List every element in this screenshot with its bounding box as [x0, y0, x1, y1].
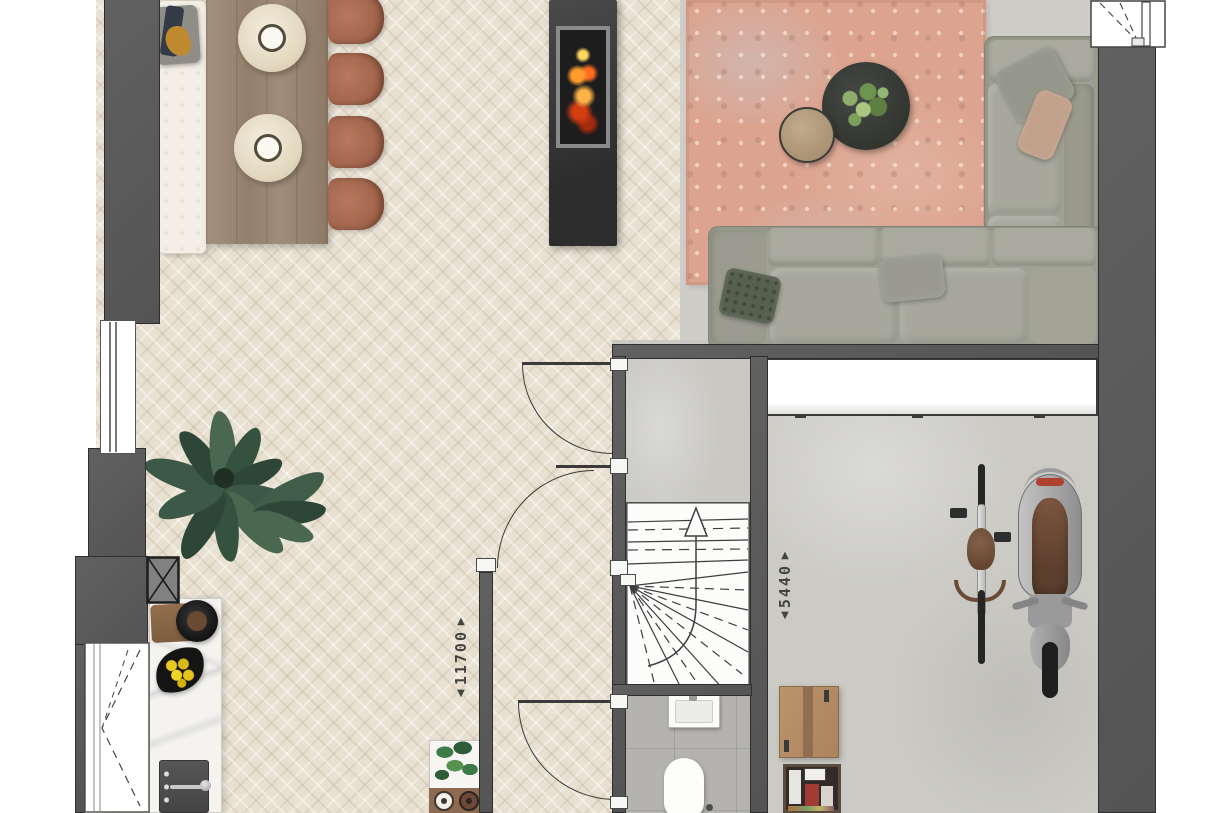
sofa-seat-cushion: [770, 268, 898, 344]
bicycle-saddle: [967, 528, 995, 570]
dimension-value: 5440: [776, 564, 794, 608]
floor-drain: [706, 804, 713, 811]
scooter-front-wheel: [1042, 642, 1058, 698]
firebox: [556, 26, 610, 148]
bicycle: [948, 462, 1012, 668]
wall-hall-garage: [750, 356, 768, 813]
shaft-symbol: [146, 556, 180, 604]
dining-chair: [328, 178, 384, 230]
shelf-item: [821, 786, 833, 808]
pendant-lamp-ring: [254, 134, 282, 162]
dimension-arrow-down: ▼: [457, 689, 465, 699]
door-jamb: [610, 358, 628, 371]
sofa-back-cushion: [992, 228, 1096, 266]
console-vase-dot: [466, 798, 472, 804]
wall-right: [1098, 42, 1156, 813]
dining-chair: [328, 116, 384, 168]
wall-vestibule: [479, 572, 493, 813]
box-label: [784, 740, 789, 752]
dining-chair: [328, 53, 384, 105]
window-bottom-left: [84, 642, 150, 813]
bicycle-front-wheel: [978, 590, 985, 664]
wall-left-lower: [75, 556, 148, 646]
coffee-table-small: [779, 107, 835, 163]
stair-newel: [620, 574, 636, 586]
sink-faucet-bar: [170, 785, 204, 789]
door-jamb: [476, 558, 496, 572]
wall-left-top: [104, 0, 160, 324]
lemons: [163, 656, 197, 688]
plant-pot: [214, 468, 234, 488]
bicycle-pedal: [994, 532, 1011, 542]
scooter-taillight: [1036, 478, 1064, 486]
scooter-seat: [1032, 498, 1068, 602]
door-jamb: [610, 694, 628, 709]
bicycle-pedal: [950, 508, 967, 518]
sofa-back-cushion: [768, 228, 878, 266]
sink-faucet-knob: [200, 780, 211, 791]
sink-dots: [164, 770, 169, 804]
door-jamb: [610, 796, 628, 809]
floor-plan: ▲ 11700 ▼ ▲ 5440 ▼: [0, 0, 1220, 813]
dining-chair: [328, 0, 384, 44]
dimension-arrow-up: ▲: [781, 551, 789, 561]
dimension-arrow-up: ▲: [457, 617, 465, 627]
garage-door: [756, 358, 1098, 416]
sofa-pillow-gray: [878, 253, 946, 303]
wall-bathroom-top: [612, 684, 752, 696]
garage-door-tick: [795, 414, 806, 418]
window-left: [100, 320, 136, 454]
console-vase-dot: [441, 798, 447, 804]
dimension-arrow-down: ▼: [781, 611, 789, 621]
shelf-item: [805, 784, 819, 808]
scooter: [1012, 466, 1088, 702]
pendant-lamp-ring: [258, 24, 286, 52]
shelf-item: [789, 770, 801, 804]
sink-basin: [675, 700, 713, 723]
sofa-seat-cushion: [1030, 268, 1096, 344]
garage-door-tick: [1034, 414, 1045, 418]
window-glass-line: [115, 322, 117, 452]
shelf-item: [804, 768, 826, 781]
door-jamb: [610, 458, 628, 474]
monstera-plant: [428, 736, 484, 790]
table-plant: [832, 76, 892, 132]
entry-door: [1090, 0, 1166, 48]
wall-left-mid: [88, 448, 146, 558]
window-glass-line: [109, 322, 111, 452]
garage-door-tick: [912, 414, 923, 418]
pot-contents: [187, 611, 207, 631]
box-tape: [803, 686, 813, 758]
toilet: [664, 758, 704, 813]
dimension-garage: ▲ 5440 ▼: [768, 534, 802, 638]
box-label: [824, 690, 829, 702]
dimension-value: 11700: [452, 630, 470, 685]
staircase: [626, 502, 750, 692]
shelf-item: [788, 806, 834, 811]
dimension-living: ▲ 11700 ▼: [444, 598, 478, 718]
wall-hall-top: [612, 344, 1100, 359]
door-leaf: [556, 465, 612, 468]
